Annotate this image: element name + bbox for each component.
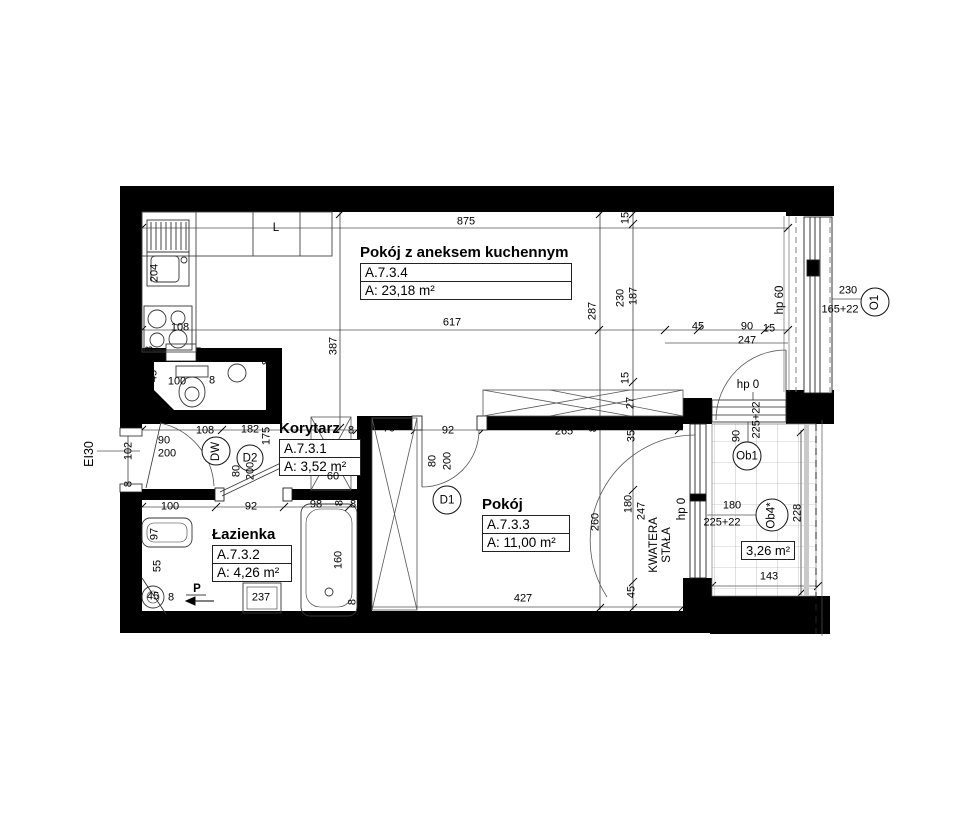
hp0-kitchen-label: hp 0 [737, 379, 759, 391]
dim-label: 8 [350, 500, 356, 511]
dim-label: 8 [144, 398, 155, 404]
room-label-pokoj: Pokój A.7.3.3 A: 11,00 m² [482, 496, 570, 552]
entrance-door-bubble: DW [202, 437, 231, 466]
dim-label: 100 [168, 377, 186, 388]
dim-label: 70 [383, 424, 395, 435]
dim-label: 92 [245, 502, 257, 513]
room-area: A: 3,52 m² [279, 458, 361, 476]
window-ob4 [690, 424, 706, 578]
hp0-room-label: hp 0 [676, 498, 688, 520]
dim-label: 200 [443, 452, 454, 470]
dim-label: 8 [589, 426, 600, 432]
floorplan-geometry [0, 0, 968, 820]
dim-label: 8 [209, 376, 215, 387]
window-o1-tag: O1 [869, 294, 881, 309]
fridge-label: L [273, 222, 279, 234]
dim-label: 92 [442, 426, 454, 437]
dim-label: 200 [246, 462, 257, 480]
balcony-door-sill [712, 400, 786, 422]
room-name: Pokój [482, 496, 570, 513]
dim-label: 12 [124, 410, 135, 422]
dim-label: 617 [443, 318, 461, 329]
dim-label: 165+22 [821, 305, 858, 316]
dim-label: 35 [627, 430, 638, 442]
dim-label: 55 [153, 560, 164, 572]
dim-label: 90 [158, 436, 170, 447]
entrance-door-tag: DW [210, 441, 222, 460]
dim-label: 8 [348, 426, 354, 437]
dim-label: 247 [637, 502, 648, 520]
dim-label: 387 [329, 337, 340, 355]
dim-label: 187 [629, 287, 640, 305]
dim-label: 15 [763, 324, 775, 335]
balcony-area-label: 3,26 m² [741, 541, 795, 560]
room-code: A.7.3.1 [279, 439, 361, 458]
dim-label: 45 [692, 322, 704, 333]
dim-label: 247 [738, 336, 756, 347]
room-code: A.7.3.2 [212, 545, 292, 564]
dim-label: 225+22 [703, 518, 740, 529]
room-label-lazienka: Łazienka A.7.3.2 A: 4,26 m² [212, 526, 292, 582]
room-name: Pokój z aneksem kuchennym [360, 244, 572, 261]
fixed-panel-label: KWATERA STAŁA [648, 517, 674, 573]
dim-label: 98 [310, 500, 322, 511]
dim-label: 8 [168, 593, 174, 604]
dim-label: 8 [348, 599, 359, 605]
dim-label: 45 [149, 370, 160, 382]
dim-label: 80 [428, 455, 439, 467]
shaft-label: P [193, 583, 201, 595]
dim-label: 108 [171, 323, 189, 334]
dim-label: 102 [124, 442, 135, 460]
dim-label: 27 [626, 397, 637, 409]
dim-label: 200 [158, 449, 176, 460]
room-code: A.7.3.3 [482, 515, 570, 534]
room-area: A: 11,00 m² [482, 534, 570, 552]
door-d1-bubble: D1 [433, 486, 462, 515]
dim-label: 15 [621, 212, 632, 224]
dim-label: 180 [624, 495, 635, 513]
dim-label: 427 [514, 594, 532, 605]
window-ob4-tag: Ob4* [766, 502, 778, 528]
room-area: A: 4,26 m² [212, 564, 292, 582]
dim-label: 143 [760, 572, 778, 583]
hp60-label: hp 60 [774, 286, 786, 315]
dim-label: 8 [262, 359, 273, 365]
dim-label: 180 [723, 501, 741, 512]
dim-label: 287 [588, 302, 599, 320]
dim-label: 60 [327, 472, 339, 483]
room-code: A.7.3.4 [360, 263, 572, 282]
room-label-kitchen: Pokój z aneksem kuchennym A.7.3.4 A: 23,… [360, 244, 572, 300]
dim-label: 90 [741, 322, 753, 333]
dim-label: 228 [793, 504, 804, 522]
dim-label: 90 [732, 430, 743, 442]
fire-rating-label: EI30 [82, 441, 96, 467]
fixed-panel-line2: STAŁA [661, 527, 673, 563]
fixed-panel-line1: KWATERA [648, 517, 660, 573]
dim-label: 225+22 [752, 401, 763, 438]
dim-label: 100 [161, 502, 179, 513]
dim-label: 45 [627, 586, 638, 598]
floor-plan: Pokój z aneksem kuchennym A.7.3.4 A: 23,… [0, 0, 968, 820]
dim-label: 15 [621, 372, 632, 384]
window-o1-bubble: O1 [861, 288, 890, 317]
dim-label: 260 [591, 513, 602, 531]
dim-label: 182 [241, 425, 259, 436]
dim-label: 230 [616, 289, 627, 307]
dim-label: 8 [145, 346, 156, 352]
dim-label: 8 [335, 500, 346, 506]
dim-label: 875 [457, 217, 475, 228]
dim-label: 237 [252, 593, 270, 604]
window-ob1-tag: Ob1 [736, 450, 758, 462]
room-name: Łazienka [212, 526, 292, 543]
dim-label: 230 [839, 286, 857, 297]
dim-label: 108 [196, 426, 214, 437]
dim-label: 80 [232, 465, 243, 477]
door-d1-tag: D1 [440, 494, 455, 506]
dim-label: 204 [150, 264, 161, 282]
dim-label: 45 [147, 592, 159, 603]
dim-label: 265 [555, 427, 573, 438]
window-ob4-bubble: Ob4* [756, 499, 789, 532]
dim-label: 97 [150, 528, 161, 540]
dim-label: 175 [262, 427, 273, 445]
window-ob1-bubble: Ob1 [733, 442, 762, 471]
room-area: A: 23,18 m² [360, 282, 572, 300]
dim-label: 160 [334, 551, 345, 569]
dim-label: 8 [124, 481, 135, 487]
